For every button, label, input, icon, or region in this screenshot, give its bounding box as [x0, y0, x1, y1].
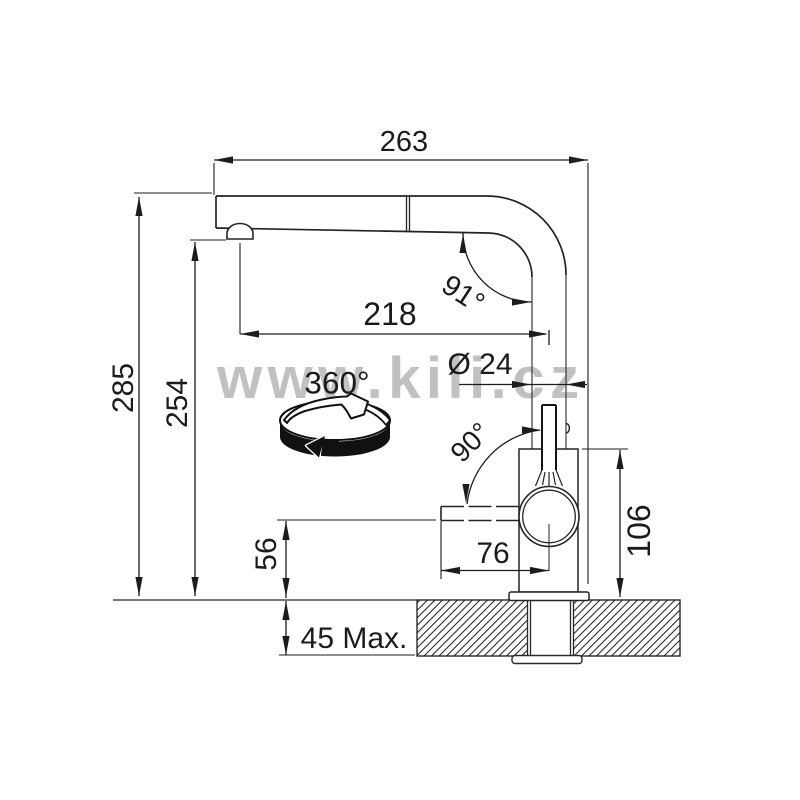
- svg-text:www.kili.cz: www.kili.cz: [216, 346, 579, 411]
- svg-text:56: 56: [250, 537, 283, 570]
- svg-text:106: 106: [621, 504, 657, 557]
- svg-text:218: 218: [363, 296, 416, 332]
- svg-text:360°: 360°: [304, 365, 369, 401]
- svg-text:254: 254: [161, 378, 194, 428]
- svg-text:285: 285: [107, 363, 140, 413]
- svg-text:263: 263: [380, 126, 428, 158]
- svg-text:76: 76: [476, 537, 509, 570]
- svg-text:45 Max.: 45 Max.: [301, 622, 408, 655]
- svg-text:Ø 24: Ø 24: [447, 348, 512, 381]
